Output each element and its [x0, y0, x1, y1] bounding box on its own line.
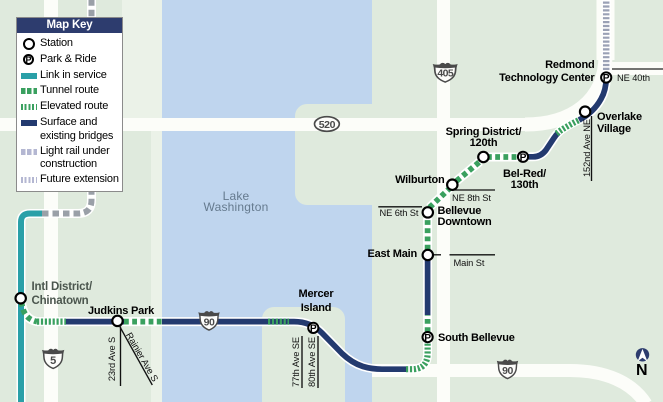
svg-text:520: 520	[319, 119, 336, 131]
svg-text:90: 90	[204, 317, 215, 329]
svg-text:P: P	[520, 153, 527, 164]
svg-text:P: P	[603, 73, 610, 84]
svg-text:405: 405	[437, 68, 453, 80]
svg-text:5: 5	[50, 355, 56, 367]
svg-text:P: P	[424, 333, 431, 344]
svg-text:90: 90	[502, 365, 513, 377]
